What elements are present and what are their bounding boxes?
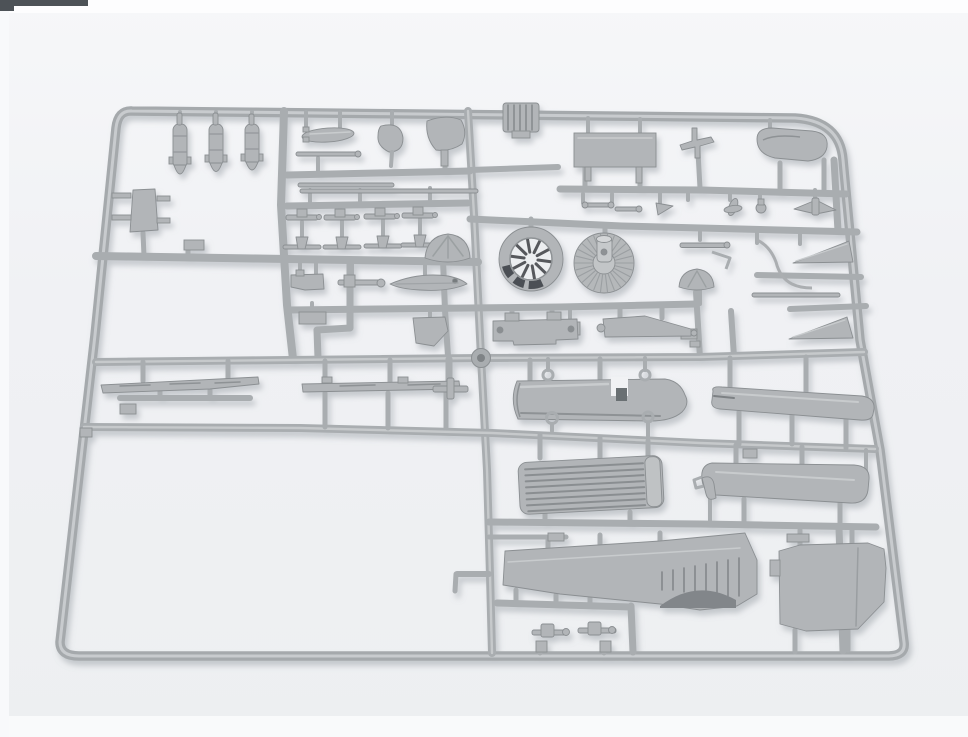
rod-right-2-shape [752,293,840,297]
thin-rod-upper-shape [355,151,361,157]
trapezoid-bulkhead-shape [130,189,158,232]
flat-rectangle-panel-shape [585,167,591,181]
rod-right-1-shape [724,242,730,248]
fuselage-spar-right-shape [398,377,408,383]
thin-rod-upper-shape [296,152,358,156]
pylon-small-3-shape [395,214,400,219]
thin-rod-upper [296,151,361,157]
cowl-blister-shape [427,117,465,150]
engine-cowling-ring [499,227,563,291]
machine-gun-1-shape [536,641,547,652]
trapezoid-bulkhead-shape [157,218,170,223]
long-rod-a-shape [298,183,394,187]
dumbbell-rod-1-shape [582,202,588,208]
gate-block-4-shape [548,533,564,541]
spinner-cone-shape [391,152,392,166]
background-band [0,716,968,737]
engine-cowling-ring-rib [511,256,524,258]
side-polygon-panel-shape [770,560,780,576]
finned-cylinder-head-shape [512,131,530,138]
trapezoid-bulkhead-shape [112,193,131,198]
trapezoid-bulkhead-shape [157,196,170,201]
rod-right-1-shape [680,243,728,248]
gate-block-4 [548,533,564,541]
long-rod-a [298,183,394,187]
gate-stub [455,574,456,591]
pylon-small-4-shape [413,207,423,215]
bomb-cylinder-3-shape [259,154,263,161]
pylon-small-2-shape [355,215,360,220]
stepped-bracket-shape [505,313,519,321]
gate-block-3-shape [743,449,757,458]
pylon-small-4-shape [433,213,438,218]
long-rod-b [300,189,478,193]
torpedo-pod-shape [303,127,309,132]
runner-bar [287,171,470,175]
side-polygon-panel-shape [787,534,809,542]
dumbbell-rod-2-shape [636,206,642,212]
nose-tube [513,377,687,421]
t-shaped-part-shape [447,378,454,399]
pylon-small-2-shape [335,209,345,217]
gun-barrel-part-shape [344,275,355,287]
fuselage-spar-left-shape [215,382,240,383]
gun-barrel-part-shape [377,279,385,287]
radial-engine-disc-shape [601,249,607,255]
bomb-cylinder-2-shape [205,155,209,162]
runner-bar [470,167,558,170]
bomb-cylinder-1-shape [177,113,182,125]
gate-block-5 [184,240,204,250]
background-band [0,0,968,13]
fuselage-spar-left-shape [170,383,200,384]
tapered-rib-shape [691,330,697,336]
runner-bar [731,311,734,357]
gate-block-1 [120,404,136,414]
louvered-radiator-panel-shape [645,456,663,507]
small-rect-plate-shape [299,312,326,324]
photo-canvas [0,0,968,737]
gate-block-2-shape [80,428,92,437]
runner-bar [790,306,866,309]
runner-bar [287,203,468,206]
fuselage-spar-right-shape [340,385,375,386]
round-knob-shape [758,199,764,205]
rod-right-2 [752,293,840,297]
gate-stub [143,233,144,256]
sprue-photo [0,0,968,737]
block-with-notch-shape [296,270,304,276]
runner-bar [631,606,633,652]
flat-rectangle-panel-shape [636,167,642,183]
runner-junction-boss [472,349,491,368]
pylon-small-1-shape [317,215,322,220]
fuselage-spar-right-shape [322,377,332,383]
corner-mark [0,0,14,11]
bomb-cylinder-3-shape [249,114,254,125]
trapezoid-bulkhead-shape [112,215,131,220]
machine-gun-2-shape [609,627,616,634]
runner-bar [757,275,861,277]
torpedo-pod-shape [303,137,309,142]
machine-gun-2-shape [588,622,601,635]
bomb-cylinder-1-shape [173,124,187,168]
machine-gun-2-shape [600,641,611,652]
cowl-blister-shape [441,150,448,166]
engine-cowling-ring-slot [506,266,511,276]
gate-block-1-shape [120,404,136,414]
radial-engine-disc-shape [597,236,612,243]
tapered-rib-shape [597,324,605,332]
gate-block-3 [743,449,757,458]
small-rect-plate [299,312,326,324]
gate-block-2 [80,428,92,437]
radial-engine-disc [574,233,634,293]
bomb-cylinder-2-shape [223,155,227,162]
bomb-cylinder-2-shape [209,124,223,166]
long-rod-b-shape [300,189,478,193]
rod-right-1 [680,242,730,248]
stepped-bracket-shape [568,326,574,332]
machine-gun-1-shape [563,629,570,636]
side-polygon-panel [770,534,886,631]
bomb-cylinder-1-shape [187,157,191,164]
fuselage-spar-left-shape [120,385,150,386]
stepped-bracket-shape [547,312,561,320]
dumbbell-rod-1 [582,202,614,208]
louvered-radiator-panel [518,455,665,514]
engine-cowling-ring-rib [538,260,551,262]
pylon-small-3-shape [375,208,385,216]
pylon-small-1-shape [297,209,307,217]
background-band [0,0,9,737]
fuselage-spar-right-shape [408,384,440,385]
small-block-right-shape [690,341,700,347]
engine-cowling-ring-slot [515,279,524,284]
gate-block-5-shape [184,240,204,250]
mini-stabilizer-shape [812,198,819,215]
engine-cowling-ring-slot [529,283,542,285]
bomb-cylinder-3-shape [245,124,259,165]
dumbbell-rod-2 [615,206,642,212]
dumbbell-rod-1-shape [608,202,614,208]
stepped-bracket-shape [497,327,503,333]
bomb-cylinder-3-shape [241,154,245,161]
bomb-cylinder-1-shape [169,157,173,164]
nose-tube-shape [616,388,627,401]
bomb-cylinder-2-shape [213,113,218,125]
machine-gun-1-shape [541,624,554,637]
